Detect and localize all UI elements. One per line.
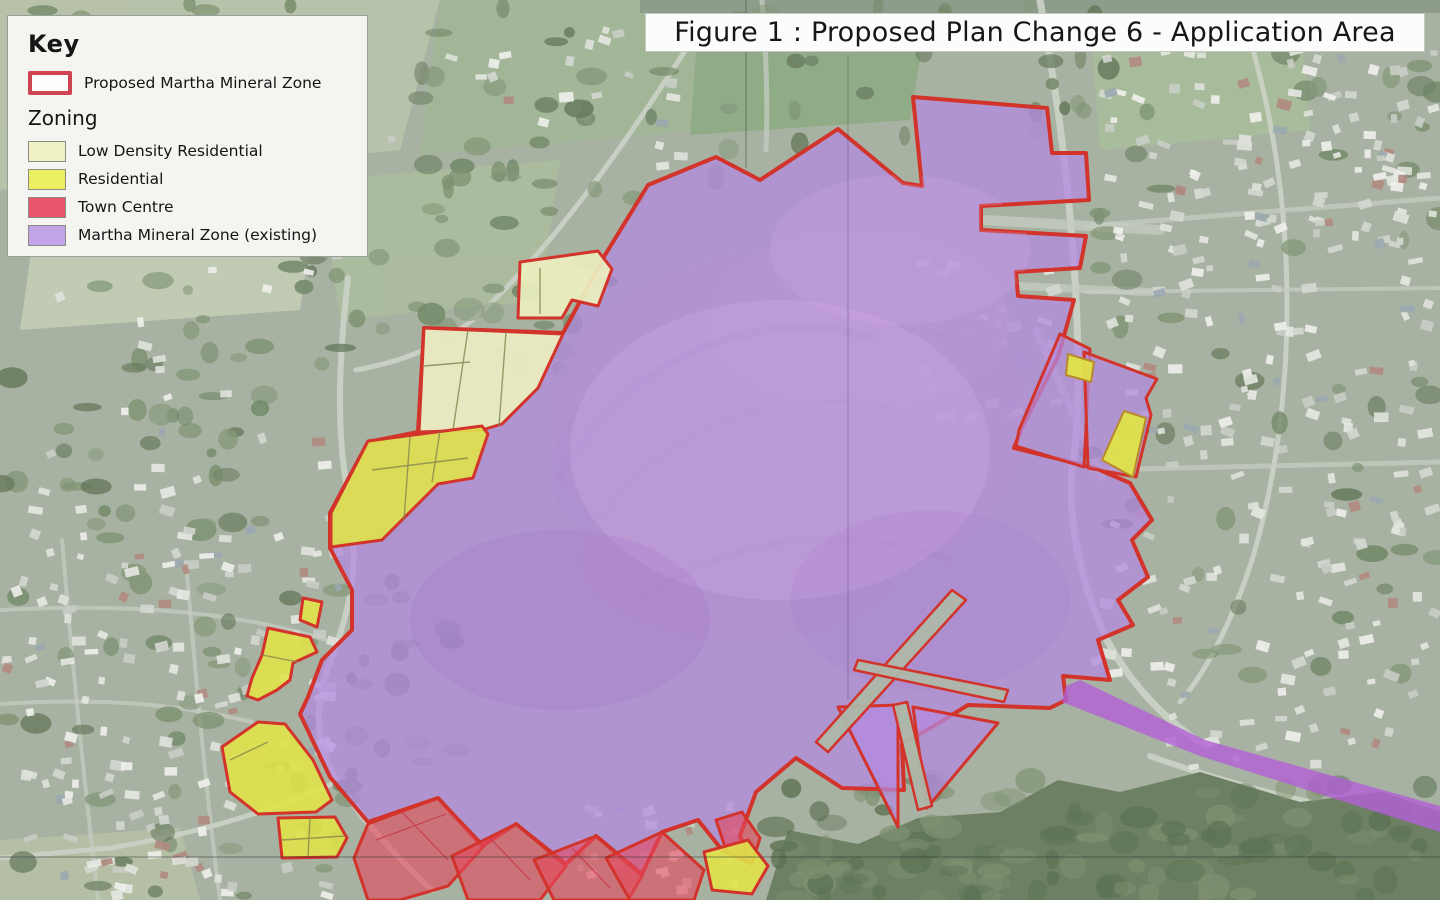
tree: [103, 637, 119, 656]
forest-tree: [1165, 859, 1204, 883]
legend-item-town-centre: Town Centre: [28, 193, 357, 221]
tree: [491, 161, 506, 182]
house: [1120, 253, 1128, 263]
residential-swatch: [28, 169, 66, 190]
tree: [534, 97, 558, 113]
tree: [1238, 667, 1267, 684]
tree: [294, 280, 313, 295]
tree: [148, 403, 174, 425]
tree: [115, 504, 135, 522]
house: [72, 636, 86, 645]
tree: [140, 436, 161, 450]
tree: [183, 285, 193, 295]
house: [504, 97, 514, 105]
house: [85, 649, 99, 655]
tree: [1407, 60, 1432, 72]
tree: [54, 423, 74, 435]
house: [1277, 688, 1286, 697]
house: [1293, 327, 1304, 335]
tree: [1331, 488, 1362, 500]
legend-heading: Key: [28, 30, 357, 58]
tree: [1352, 463, 1364, 472]
house: [1121, 648, 1132, 657]
tree: [899, 126, 910, 145]
house: [75, 505, 87, 514]
house: [674, 152, 688, 161]
tree: [168, 784, 181, 800]
house: [1390, 65, 1402, 75]
forest-tree: [757, 817, 795, 838]
house: [1325, 219, 1333, 227]
tree: [1038, 54, 1063, 68]
town-centre-swatch: [28, 197, 66, 218]
house: [1113, 227, 1123, 235]
forest-tree: [1338, 874, 1359, 884]
tree: [315, 864, 333, 873]
house: [656, 162, 670, 171]
tree: [193, 712, 225, 729]
forest-tree: [1229, 888, 1256, 900]
house: [1390, 182, 1403, 192]
tree: [176, 369, 200, 381]
tree: [424, 66, 445, 87]
house: [300, 568, 308, 577]
tree: [534, 321, 555, 330]
forest-tree: [872, 884, 886, 900]
forest-tree: [920, 815, 942, 829]
house: [1355, 167, 1362, 172]
legend-item-residential: Residential: [28, 165, 357, 193]
forest-tree: [1000, 848, 1036, 863]
forest-tree: [1161, 821, 1186, 837]
forest-tree: [1112, 881, 1136, 895]
forest-tree: [1238, 837, 1276, 863]
forest-tree: [1206, 821, 1232, 848]
low-density-swatch: [28, 141, 66, 162]
tree: [221, 613, 236, 630]
forest-tree: [1391, 826, 1411, 843]
forest-tree: [1076, 833, 1109, 843]
tree: [564, 27, 575, 38]
tree: [1192, 649, 1219, 659]
tree: [218, 429, 238, 450]
house: [1206, 265, 1213, 271]
tree: [325, 344, 356, 352]
legend-item-proposed: Proposed Martha Mineral Zone: [28, 68, 357, 98]
house: [1209, 627, 1220, 634]
forest-tree: [1413, 776, 1437, 798]
tree: [1411, 377, 1428, 387]
house: [1279, 487, 1292, 493]
house: [72, 780, 79, 788]
tree: [408, 91, 433, 105]
forest-tree: [978, 864, 1011, 879]
house: [116, 821, 124, 829]
house: [1321, 141, 1332, 152]
tree: [235, 657, 251, 677]
forest-tree: [1039, 826, 1078, 846]
forest-tree: [880, 825, 911, 841]
house: [1167, 496, 1174, 503]
house: [318, 461, 332, 470]
forest-tree: [770, 840, 798, 852]
tree: [646, 109, 657, 125]
tree: [1112, 270, 1143, 290]
mineral-existing-swatch: [28, 225, 66, 246]
house: [1374, 412, 1389, 422]
tree: [425, 29, 453, 37]
tree: [544, 37, 568, 46]
forest-tree: [781, 779, 801, 799]
house: [1162, 409, 1171, 418]
house: [124, 790, 139, 800]
house: [134, 484, 146, 490]
tree: [788, 101, 800, 121]
house: [656, 119, 668, 127]
forest-tree: [1097, 877, 1115, 899]
house: [1240, 719, 1255, 726]
tree: [1046, 78, 1059, 90]
forest-tree: [1341, 812, 1362, 834]
figure-title-banner: Figure 1 : Proposed Plan Change 6 - Appl…: [645, 13, 1425, 52]
house: [210, 742, 221, 752]
tree: [1377, 583, 1393, 594]
forest-tree: [1046, 849, 1059, 869]
forest-tree: [1128, 859, 1145, 873]
tree: [1059, 101, 1070, 115]
low-density-label: Low Density Residential: [78, 142, 263, 160]
tree: [194, 616, 217, 636]
tree: [1272, 411, 1288, 434]
house: [1168, 364, 1182, 373]
tree: [1391, 544, 1419, 556]
house: [198, 826, 208, 836]
tree: [142, 272, 173, 289]
tree: [1147, 185, 1176, 193]
forest-tree: [1110, 831, 1139, 855]
house: [1129, 56, 1142, 67]
house: [185, 857, 199, 867]
tree: [422, 203, 445, 215]
house: [312, 437, 326, 446]
tree: [564, 99, 594, 117]
forest-tree: [1060, 854, 1087, 879]
house: [488, 58, 500, 69]
house: [100, 726, 107, 736]
house: [1310, 760, 1321, 769]
house: [238, 564, 252, 574]
tree: [1310, 657, 1331, 676]
tree: [529, 136, 549, 148]
tree: [88, 448, 104, 461]
tree: [279, 591, 302, 606]
house: [158, 428, 165, 438]
house: [1296, 591, 1304, 600]
forest-tree: [1015, 768, 1045, 793]
house: [1105, 124, 1115, 132]
house: [1211, 95, 1220, 104]
tree: [245, 339, 274, 354]
house: [219, 535, 232, 543]
tree: [121, 363, 146, 373]
tree: [483, 284, 505, 294]
house: [301, 546, 316, 556]
forest-tree: [1120, 806, 1158, 827]
tree: [148, 885, 163, 897]
house: [1324, 501, 1335, 508]
house: [666, 78, 677, 89]
house: [225, 572, 234, 578]
tree: [490, 216, 519, 230]
house: [1175, 187, 1185, 195]
tree: [251, 400, 269, 416]
tree: [786, 54, 805, 69]
house: [1400, 305, 1414, 312]
house: [250, 635, 260, 646]
house: [121, 562, 128, 568]
forest-tree: [1195, 787, 1220, 798]
forest-tree: [939, 865, 968, 876]
figure-title-text: Figure 1 : Proposed Plan Change 6 - Appl…: [674, 17, 1395, 48]
house: [2, 656, 12, 663]
house: [1210, 730, 1223, 738]
house: [214, 874, 222, 883]
tree: [1125, 146, 1147, 163]
house: [159, 600, 171, 608]
forest-tree: [830, 861, 852, 872]
house: [64, 614, 72, 624]
residential-label: Residential: [78, 170, 163, 188]
legend-panel: Key Proposed Martha Mineral Zone Zoning …: [7, 15, 368, 257]
house: [1237, 141, 1253, 151]
house: [1110, 117, 1117, 123]
tree: [207, 448, 217, 457]
forest-tree: [1198, 874, 1230, 899]
tree: [177, 407, 193, 426]
forest-tree: [1148, 866, 1166, 887]
tree: [230, 353, 247, 362]
house: [198, 815, 210, 825]
proposed-zone-label: Proposed Martha Mineral Zone: [84, 74, 321, 92]
tree: [348, 309, 365, 327]
house: [164, 767, 177, 775]
house: [1191, 268, 1204, 278]
house: [26, 708, 35, 717]
tree: [1216, 507, 1235, 531]
house: [1313, 229, 1320, 237]
house: [1197, 52, 1206, 58]
tree: [453, 298, 484, 321]
tree: [1089, 208, 1110, 219]
forest-tree: [797, 859, 830, 879]
house: [199, 553, 214, 559]
tree: [417, 303, 445, 326]
town-centre-label: Town Centre: [78, 198, 174, 216]
forest-tree: [899, 848, 931, 874]
tree: [98, 505, 111, 517]
house: [227, 882, 237, 892]
house: [1413, 592, 1422, 602]
tree: [81, 479, 112, 495]
house: [208, 267, 217, 274]
house: [176, 589, 190, 600]
forest-tree: [1230, 783, 1260, 809]
tree: [587, 181, 602, 198]
house: [475, 74, 486, 79]
tree: [464, 137, 491, 155]
tree: [183, 321, 199, 339]
house: [1377, 155, 1386, 161]
house: [1364, 149, 1370, 158]
house: [313, 630, 327, 639]
tree: [128, 399, 147, 421]
house: [135, 554, 144, 560]
house: [1391, 114, 1397, 123]
house: [1252, 183, 1262, 192]
tree: [196, 315, 210, 323]
tree: [804, 55, 818, 66]
tree: [1090, 262, 1111, 274]
house: [1269, 214, 1277, 223]
house: [1150, 662, 1164, 671]
tree: [540, 207, 558, 216]
house: [1301, 283, 1317, 294]
forest-tree: [980, 792, 1010, 811]
tree: [1076, 103, 1092, 119]
tree: [314, 357, 329, 370]
house: [1352, 231, 1359, 241]
forest-tree: [1408, 850, 1422, 862]
house: [175, 560, 184, 568]
tree: [219, 843, 243, 854]
house: [1239, 534, 1249, 544]
house: [1345, 91, 1357, 99]
house: [1181, 691, 1191, 698]
tree: [59, 478, 75, 492]
forest-tree: [1373, 867, 1397, 895]
tree: [434, 239, 460, 258]
house: [98, 677, 105, 685]
tree: [73, 403, 102, 411]
tree: [96, 532, 124, 543]
house: [28, 637, 36, 645]
tree: [649, 67, 679, 76]
forest-tree: [1065, 811, 1094, 826]
tree: [720, 103, 738, 114]
house: [1244, 211, 1255, 220]
house: [1275, 716, 1287, 721]
house: [1302, 140, 1310, 147]
house: [1185, 309, 1198, 319]
house: [1169, 84, 1180, 94]
tree: [576, 68, 607, 86]
mineral-existing-label: Martha Mineral Zone (existing): [78, 226, 317, 244]
house: [121, 408, 128, 415]
tree: [329, 268, 345, 283]
house: [1221, 438, 1234, 446]
house: [1173, 617, 1183, 624]
tree: [414, 155, 442, 174]
tree: [1139, 104, 1154, 121]
tree: [56, 443, 72, 458]
house: [155, 366, 165, 374]
tree: [87, 280, 113, 292]
forest-tree: [1284, 835, 1312, 858]
map-figure: Key Proposed Martha Mineral Zone Zoning …: [0, 0, 1440, 900]
tree: [84, 881, 112, 891]
forest-tree: [839, 877, 863, 894]
tree: [435, 215, 448, 223]
tree: [532, 179, 558, 189]
house: [194, 693, 204, 704]
tree: [1158, 313, 1185, 324]
zoning-heading: Zoning: [28, 106, 357, 130]
tree: [155, 706, 182, 722]
house: [1338, 650, 1349, 659]
tree: [209, 465, 223, 487]
house: [1388, 598, 1398, 608]
tree: [1230, 600, 1246, 615]
house: [173, 643, 185, 652]
house: [140, 604, 154, 613]
legend-item-mineral-existing: Martha Mineral Zone (existing): [28, 221, 357, 249]
tree: [481, 302, 504, 324]
house: [1195, 83, 1205, 90]
forest-tree: [1046, 871, 1059, 885]
tree: [856, 87, 874, 100]
house: [1399, 528, 1406, 537]
house: [151, 464, 165, 473]
house: [159, 815, 170, 825]
house: [1157, 428, 1165, 435]
legend-item-low-density: Low Density Residential: [28, 137, 357, 165]
tree: [369, 249, 390, 266]
tree: [178, 423, 201, 438]
house: [1398, 175, 1407, 184]
house: [60, 871, 69, 880]
house: [565, 55, 575, 66]
house: [1125, 315, 1134, 323]
tree: [9, 851, 36, 873]
tree: [375, 322, 390, 334]
house: [1249, 112, 1262, 123]
house: [1428, 210, 1437, 217]
tree: [443, 179, 454, 199]
tree: [201, 342, 219, 363]
tree: [236, 892, 252, 900]
tree: [718, 139, 738, 160]
forest-tree: [1283, 808, 1312, 827]
tree: [72, 725, 94, 735]
house: [123, 653, 135, 664]
house: [1397, 438, 1406, 447]
tree: [203, 647, 222, 657]
house: [1430, 50, 1438, 56]
house: [1363, 131, 1375, 139]
house: [61, 757, 72, 764]
tree: [218, 513, 247, 533]
tree: [1281, 239, 1306, 256]
house: [559, 92, 574, 103]
forest-tree: [817, 815, 848, 831]
house: [1411, 658, 1420, 665]
house: [80, 532, 87, 540]
tree: [1323, 431, 1342, 450]
house: [119, 638, 128, 648]
house: [1369, 367, 1384, 375]
house: [1200, 425, 1212, 436]
house: [1417, 172, 1431, 179]
